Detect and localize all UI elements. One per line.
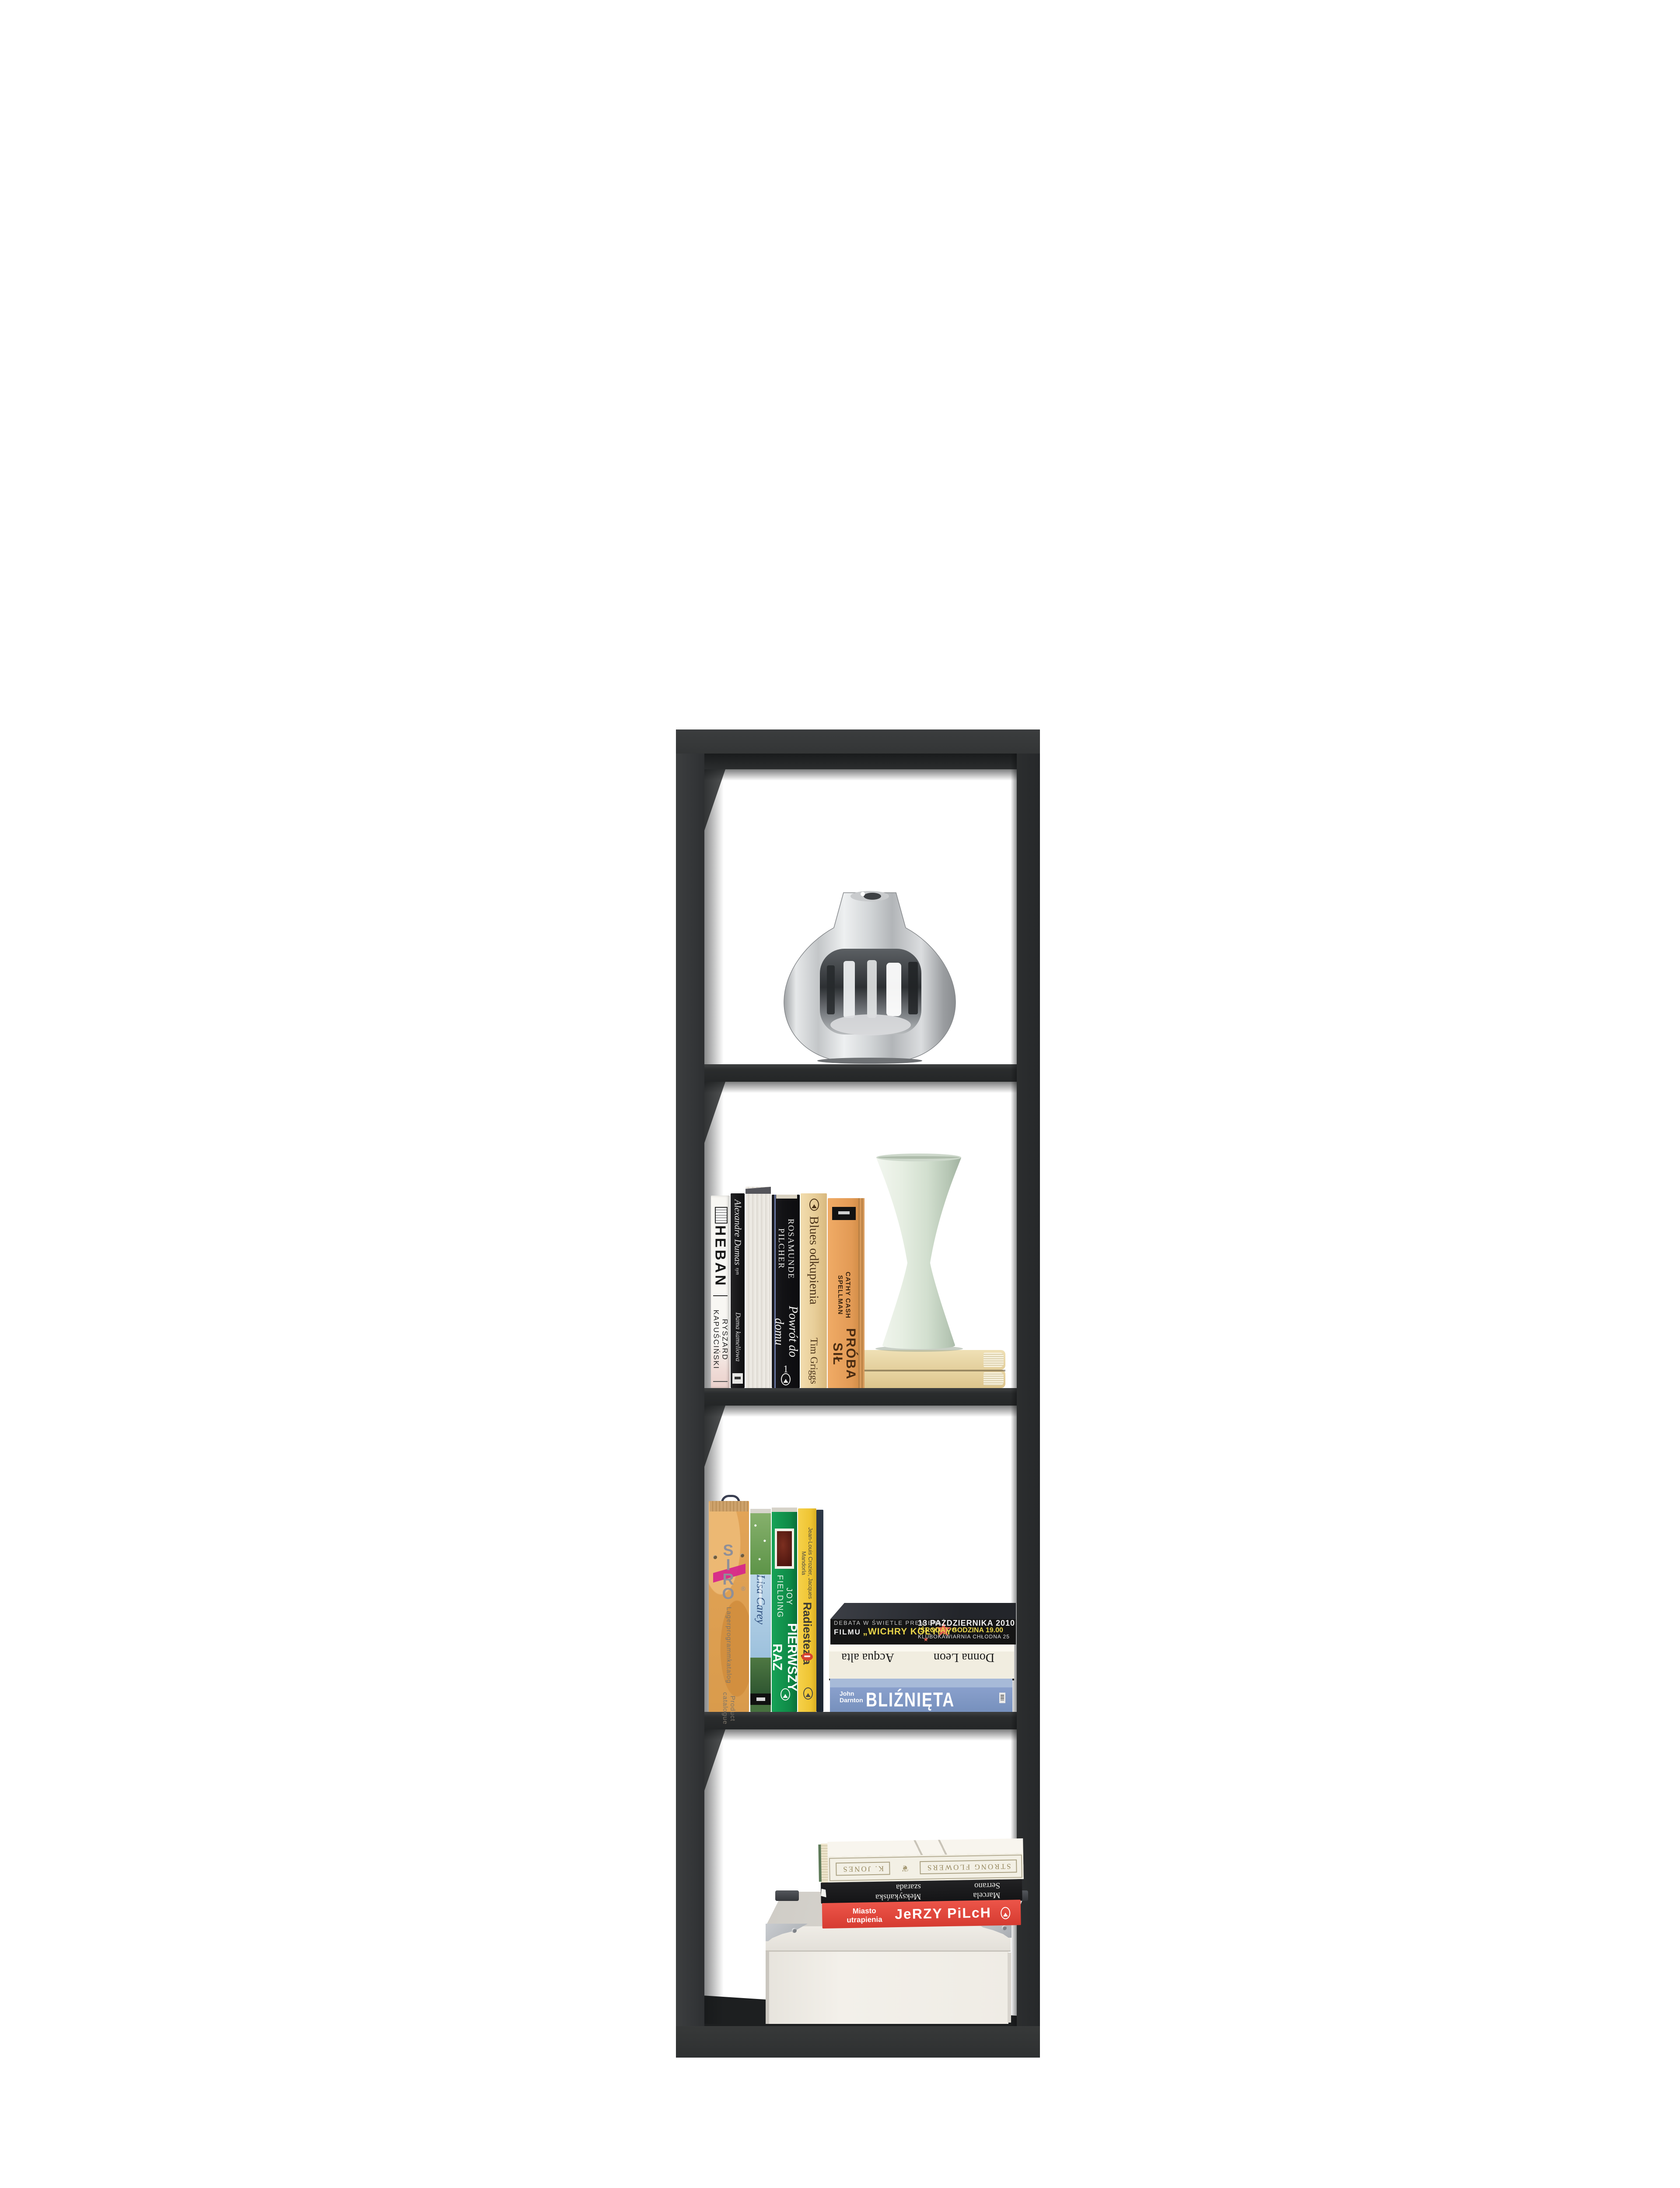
book-powrot-do-domu: ROSAMUNDE PILCHER Powrót do domu 1 (772, 1195, 800, 1388)
binder-siro-catalogue: SIRO ® Lagerprogrammkatalog Product cata… (709, 1501, 749, 1712)
shelf-left-panel (676, 754, 704, 2026)
meadow-artwork (750, 1658, 771, 1694)
dumas-author-text: Alexandre Dumas (732, 1199, 743, 1265)
dark-front-cover-sliver (816, 1510, 823, 1712)
shelf-base-panel (676, 2026, 1040, 2058)
spellman-title: PRÓBA SIŁ (831, 1326, 857, 1382)
shelf-divider-3 (704, 1712, 1017, 1729)
stacked-book-cream-2 (863, 1370, 1005, 1388)
rule (713, 1295, 728, 1296)
lying-book-wichry-kolymy: DEBATA W ŚWIETLE PREMIERA FILMU „WICHRY … (830, 1603, 1016, 1645)
pilch-title: Miasto utrapienia (847, 1907, 882, 1925)
siro-catalog-de: Lagerprogrammkatalog (725, 1607, 733, 1683)
radiestezja-authors: Jean-Louis Crozier, Jacques Mandorla (798, 1526, 816, 1600)
spellman-text: CATHY CASH SPELLMAN PRÓBA SIŁ (829, 1264, 859, 1382)
fielding-title: PIERWSZY RAZ (772, 1623, 797, 1687)
inner-shadow (704, 769, 1017, 781)
page-top-edge (750, 1509, 771, 1513)
left-wall-shadow (704, 1729, 724, 2024)
leon-author: Donna Leon (934, 1650, 994, 1664)
spine-label (832, 1207, 856, 1220)
jones-spine-text: STRONG FLOWERS ❦ K. JONES (832, 1854, 1021, 1881)
radiestezja-title: Radiestezja (798, 1602, 816, 1649)
page-edges (983, 1372, 1004, 1385)
book-radiestezja: Jean-Louis Crozier, Jacques Mandorla Rad… (798, 1508, 816, 1712)
publisher-label (732, 1373, 743, 1384)
darnton-title: BLIŹNIĘTA (866, 1688, 955, 1711)
leon-title: Acqua alta (841, 1650, 894, 1664)
pilch-title-line1: Miasto (853, 1907, 876, 1915)
publisher-bell-icon (1001, 1907, 1010, 1919)
publisher-label (750, 1694, 771, 1705)
page-top-edge (776, 1195, 797, 1199)
rivet (792, 1928, 797, 1933)
serrano-title: Meksykańska szarada (857, 1882, 921, 1902)
rule (713, 1381, 728, 1382)
shelf-divider-1 (704, 1064, 1017, 1082)
inner-shadow (704, 1729, 1017, 1741)
publisher-bell-icon (780, 1688, 790, 1701)
meadow-artwork (750, 1513, 771, 1574)
pilch-title-line2: utrapienia (847, 1915, 882, 1924)
storage-box-lid-front (766, 1926, 1011, 1952)
lying-book-acqua-alta: Donna Leon Acqua alta (829, 1645, 1014, 1679)
poster-time: (ŚRODA), GODZINA 19.00 (918, 1627, 1015, 1634)
illegible-title-bar (759, 1575, 762, 1606)
shelf-divider-2 (704, 1388, 1017, 1406)
publisher-bell-icon (781, 1373, 791, 1385)
lying-book-miasto-utrapienia: Miasto utrapienia JeRZY PiLcH (822, 1900, 1021, 1929)
book-stack-on-box: STRONG FLOWERS ❦ K. JONES Marcela Serran… (820, 1838, 1027, 1929)
ornament-icon: ❦ (901, 1863, 909, 1874)
pilch-author: JeRZY PiLcH (895, 1904, 991, 1922)
shelf-top-panel (676, 729, 1040, 754)
publisher-bell-icon (803, 1687, 813, 1700)
book-heban: HEBAN RYSZARD KAPUŚCIŃSKI (711, 1196, 730, 1388)
siro-logo: SIRO ® (709, 1543, 749, 1600)
shelf-right-panel (1017, 754, 1040, 2026)
heban-author: RYSZARD KAPUŚCIŃSKI (711, 1302, 730, 1377)
inner-shadow (704, 1406, 1017, 1417)
right-wall-shadow (1011, 754, 1017, 2026)
lying-book-bliznieta: John Darnton BLIŹNIĘTA (830, 1679, 1012, 1712)
cover-photo (775, 1529, 794, 1569)
dumas-author-suffix: syn (735, 1268, 741, 1275)
poster-film-prefix: FILMU (834, 1628, 861, 1636)
publisher-label (999, 1693, 1005, 1703)
page-edges (820, 1844, 828, 1883)
book-lisa-carey: Lisa Carey (750, 1509, 771, 1712)
stacked-book-cream-1 (860, 1350, 1005, 1370)
griggs-title: Blues odkupienia (801, 1216, 827, 1332)
inner-shadow (704, 1082, 1017, 1093)
book-spine: DEBATA W ŚWIETLE PREMIERA FILMU „WICHRY … (830, 1619, 1016, 1645)
poster-date: 13 PAŹDZIERNIKA 2010 (918, 1619, 1015, 1627)
chrome-vase (778, 887, 962, 1064)
chrome-corner-bracket (775, 1890, 799, 1901)
storage-box-left-side (766, 1952, 769, 2024)
siro-catalog-en: Product catalogue (721, 1692, 736, 1725)
book-cover-edge (745, 1187, 771, 1194)
jones-title: STRONG FLOWERS (920, 1860, 1017, 1875)
serrano-author: Marcela Serrano (952, 1880, 1001, 1900)
book-spine: John Darnton BLIŹNIĘTA (830, 1687, 1012, 1712)
fielding-author: JOY FIELDING (772, 1573, 797, 1620)
darnton-author-last: Darnton (840, 1697, 863, 1704)
heban-publisher-logo (715, 1207, 728, 1224)
siro-reg: ® (741, 1585, 745, 1592)
storage-box-right-side (1008, 1953, 1011, 2023)
dumas-title: Dama kameliowa (731, 1312, 745, 1378)
siro-wordmark: SIRO (709, 1543, 749, 1601)
front-cover-edge (858, 1198, 864, 1388)
jones-author: K. JONES (836, 1862, 890, 1876)
pilcher-author: ROSAMUNDE PILCHER (772, 1203, 800, 1295)
darnton-author: John Darnton (840, 1690, 863, 1703)
storage-box-body (769, 1952, 1008, 2024)
book-top-face (830, 1603, 1016, 1619)
shelf-top-underface (704, 754, 1017, 769)
darnton-author-first: John (840, 1690, 854, 1697)
mint-hourglass-vase (868, 1152, 969, 1352)
book-seam (863, 1370, 1005, 1371)
left-wall-shadow (704, 769, 724, 1064)
page-edges (983, 1353, 1004, 1367)
book-proba-sil: CATHY CASH SPELLMAN PRÓBA SIŁ (828, 1198, 864, 1388)
leon-spine-text: Donna Leon Acqua alta (829, 1645, 1014, 1670)
heban-title: HEBAN (711, 1225, 730, 1291)
publisher-mark-icon (821, 1889, 826, 1897)
product-photo: HEBAN RYSZARD KAPUŚCIŃSKI Alexandre Duma… (0, 0, 1680, 2188)
book-top-face (830, 1679, 1012, 1687)
book-pages-out (745, 1187, 771, 1388)
book-blues-odkupienia: Blues odkupienia Tim Griggs (801, 1193, 827, 1388)
griggs-author: Tim Griggs (801, 1338, 827, 1386)
publisher-bell-icon (809, 1199, 819, 1211)
pilcher-title: Powrót do domu (772, 1301, 800, 1362)
book-dama-kameliowa: Alexandre Dumas syn Dama kameliowa (731, 1193, 745, 1388)
siro-catalog-text: Lagerprogrammkatalog Product catalogue (709, 1602, 749, 1706)
dumas-author: Alexandre Dumas syn (731, 1199, 745, 1309)
red-oval-badge (801, 1653, 813, 1661)
poster-right-block: 13 PAŹDZIERNIKA 2010 (ŚRODA), GODZINA 19… (918, 1619, 1015, 1639)
page-top-edge (772, 1508, 797, 1512)
page-top-edge (710, 1501, 748, 1511)
spellman-author: CATHY CASH SPELLMAN (836, 1264, 852, 1326)
book-pierwszy-raz: JOY FIELDING PIERWSZY RAZ (772, 1508, 797, 1712)
lying-book-strong-flowers: STRONG FLOWERS ❦ K. JONES (827, 1838, 1024, 1883)
poster-venue: KLUBOKAWIARNIA CHŁODNA 25 (918, 1634, 1015, 1639)
